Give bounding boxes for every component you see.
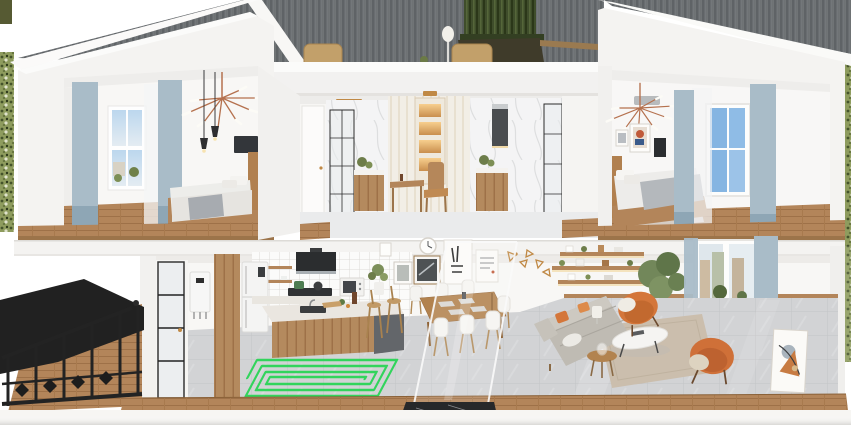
nook-pendant-light (423, 91, 437, 96)
window-pane (128, 110, 142, 146)
underfloor-heating-coil (238, 360, 397, 396)
fridge-display (258, 267, 265, 277)
leaning-artwork (771, 329, 808, 393)
street-building (113, 162, 125, 176)
street-tree (114, 174, 122, 182)
wall-boiler (190, 272, 210, 319)
terrace-lamp (442, 26, 454, 42)
frame-small (380, 243, 391, 256)
bedroom-left-window (108, 106, 146, 190)
threshold-right (562, 218, 600, 238)
ground-floor (120, 236, 848, 419)
lit-niche (419, 122, 441, 135)
door-handle (178, 328, 182, 332)
green-pot (294, 281, 304, 289)
terrace-slab-top (264, 62, 610, 72)
bathroom-floor (300, 212, 600, 238)
shelf-dish (281, 276, 287, 280)
bathroom-cut-wall-left (258, 66, 300, 240)
bedroom-right-window (706, 104, 750, 196)
street-tree (713, 285, 727, 299)
floor-front-band (18, 236, 274, 240)
newel-cap (133, 300, 139, 306)
lit-niche (419, 104, 441, 117)
shelf-cup (272, 262, 277, 266)
dressing-nook (388, 91, 470, 226)
black-wall-panel (654, 138, 666, 157)
wall-tv (234, 136, 258, 153)
house-cutaway-render (0, 0, 851, 425)
ground-shadow (0, 416, 851, 425)
bottle (352, 292, 357, 304)
street-tree (129, 167, 139, 177)
sheer-curtain-right-bedroom (692, 88, 712, 228)
cooktop (288, 288, 332, 296)
hood-trim (296, 271, 336, 274)
door-knob (319, 166, 322, 169)
curtain-window-right (750, 84, 776, 236)
glass-vase (597, 343, 607, 355)
foliage-strip-left (0, 52, 14, 232)
lit-niche (419, 140, 441, 153)
street-building (700, 260, 710, 302)
house-cutaway-3d-scene (0, 0, 851, 425)
open-shelf (268, 280, 292, 283)
party-wall (598, 66, 612, 240)
frame-art (397, 265, 409, 281)
tall-wood-cabinet (214, 254, 240, 398)
mirror-cabinet (492, 104, 508, 148)
bathroom-door (302, 106, 324, 220)
frame-photo-art (417, 259, 437, 281)
threshold-left (300, 222, 330, 240)
kettle (314, 282, 323, 291)
curtain-window-left (674, 90, 694, 232)
window-pane (112, 110, 126, 146)
outdoor-staircase (0, 279, 144, 412)
foundation (0, 410, 851, 425)
glass-door-right (544, 104, 562, 224)
sink (300, 306, 326, 313)
shower-glass-left (330, 110, 354, 222)
open-shelf (268, 266, 292, 269)
range-hood (296, 252, 336, 273)
foliage-corner-top-left (0, 0, 12, 24)
fruit (346, 304, 350, 308)
upper-hallway-wall (562, 96, 600, 232)
